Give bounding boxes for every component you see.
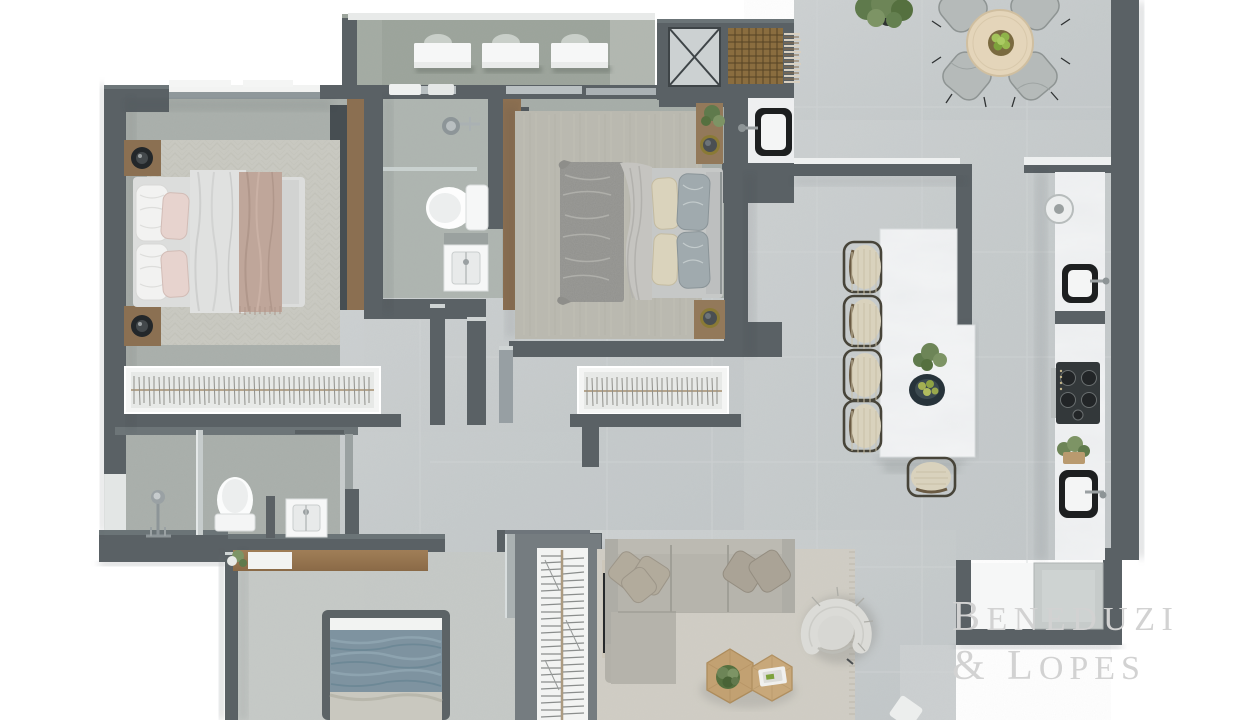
svg-text:& LOPES: & LOPES [952,643,1146,689]
svg-text:BENEDUZI: BENEDUZI [952,594,1179,640]
